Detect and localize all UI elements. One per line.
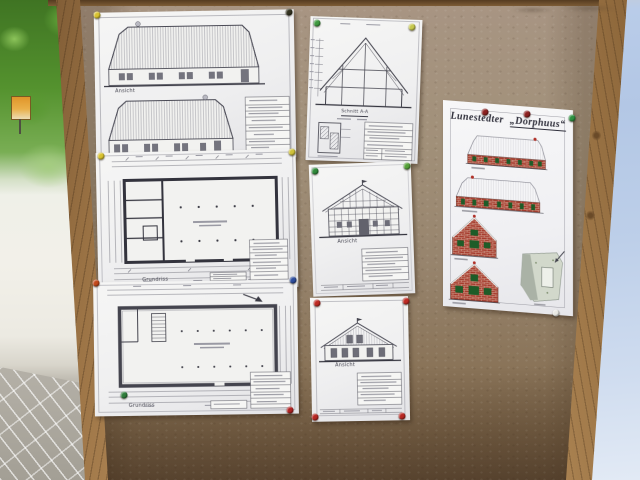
title-block — [320, 247, 409, 290]
title-block — [319, 372, 402, 413]
title-block — [245, 96, 290, 151]
floor-plan-drawing — [93, 280, 299, 417]
sheet-gable-elevation-2: Ansicht — [310, 296, 410, 422]
sheet-gable-elevation-1: Ansicht — [309, 161, 416, 296]
dimension-lines — [309, 38, 324, 96]
distant-yellow-sign — [11, 96, 31, 120]
north-arrow — [243, 294, 261, 301]
drawing-label: Schnitt A-A — [341, 109, 368, 116]
gable-elevation-drawing — [310, 296, 410, 422]
section-drawing — [306, 16, 423, 164]
detail-drawing — [318, 122, 351, 157]
drawing-label: Ansicht — [115, 89, 135, 94]
floor-plan-drawing — [96, 149, 299, 291]
notice-board-photo: Ansicht Ansicht — [0, 0, 640, 480]
elevations-drawing — [94, 9, 297, 160]
coloured-gable-elevation-2 — [449, 259, 500, 307]
cross-section — [315, 36, 413, 107]
wood-knot — [586, 210, 595, 221]
gable-elevation-drawing — [309, 161, 416, 296]
sheet-elevations: Ansicht Ansicht — [94, 9, 297, 160]
sheet-section: Schnitt A-A — [306, 16, 423, 164]
presentation-drawing — [443, 100, 573, 316]
drawing-label: Grundriss — [129, 404, 155, 409]
coloured-long-elevation-2 — [454, 174, 543, 218]
drawing-label: Ansicht — [335, 363, 355, 368]
coloured-long-elevation-1 — [466, 132, 548, 174]
site-plan — [521, 248, 565, 307]
drawing-label: Ansicht — [337, 239, 357, 245]
cork-smudge — [495, 2, 620, 18]
sheet-presentation-dorphuus: Lunestedter„Dorphuus“ — [443, 100, 573, 316]
sheet-floor-plan-2: Grundriss — [93, 280, 299, 417]
title-block — [364, 122, 413, 161]
wood-knot — [592, 130, 601, 141]
sheet-floor-plan-1: Grundriss — [96, 149, 299, 291]
coloured-gable-elevation-1 — [451, 213, 498, 263]
